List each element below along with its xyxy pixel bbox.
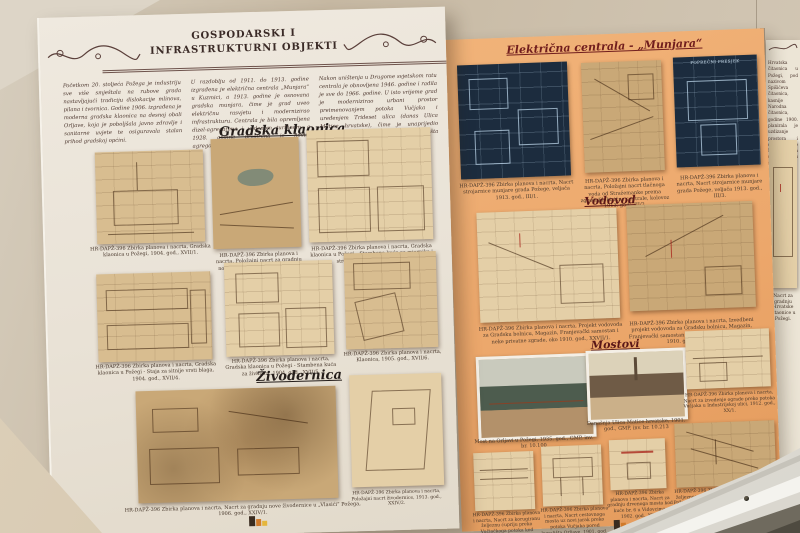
drawing-bridge-1 xyxy=(473,451,535,511)
map-vodovod-2 xyxy=(626,201,756,312)
caption: HR-DAPŽ-396 Zbirka planova i nacrta, Nac… xyxy=(683,390,776,416)
sketch-lines xyxy=(286,307,328,348)
sketch-lines xyxy=(354,292,405,341)
sketch-lines xyxy=(190,289,207,344)
sketch-lines xyxy=(220,224,294,228)
logo-block xyxy=(256,519,261,526)
caption: HR-DAPŽ-396 Zbirka planova i nacrta, Gra… xyxy=(85,243,215,259)
sketch-lines xyxy=(480,469,528,472)
sketch-lines xyxy=(691,448,759,468)
sketch-lines xyxy=(229,411,308,424)
sketch-lines xyxy=(699,362,727,381)
sketch-lines xyxy=(560,478,562,496)
sketch-lines xyxy=(238,312,280,347)
drawing-klaonica-plans xyxy=(306,127,433,242)
map-vodovod-1 xyxy=(476,208,620,323)
drawing-klaonica-elevation xyxy=(95,149,206,244)
sketch-chimney xyxy=(136,162,138,190)
map-tlacni-vod xyxy=(581,60,665,173)
caption: Današnja Ulica Matice hrvatske, 1901. go… xyxy=(586,417,686,433)
blueprint-poprecni-presjek: POPREČNI PRESJEK xyxy=(673,55,761,168)
sketch-lines xyxy=(237,447,300,475)
caption: HR-DAPŽ-396 Zbirka planova i nacrta, Pol… xyxy=(346,489,446,509)
flourish-ornament-right xyxy=(341,29,438,58)
sketch-lines xyxy=(560,263,605,304)
sketch-lines xyxy=(773,167,793,258)
sketch-lines xyxy=(377,185,425,231)
sketch-lines xyxy=(715,439,717,465)
sketch-lines xyxy=(108,232,194,235)
sketch-lines xyxy=(552,457,593,478)
screw-head xyxy=(744,496,749,501)
drawing-klaonica-1905 xyxy=(344,251,439,350)
photo-road xyxy=(481,407,594,438)
right-exhibition-panel: Električna centrala - „Munjara“ POPREČNI… xyxy=(444,28,782,531)
caption: HR-DAPŽ-396 Zbirka planova i nacrta, Nac… xyxy=(123,501,363,520)
sketch-lines xyxy=(113,189,179,226)
sketch-lines xyxy=(318,187,371,233)
blueprint-strojarnica-1 xyxy=(457,62,571,180)
sketch-lines xyxy=(392,407,415,425)
drawing-bridge-2 xyxy=(541,445,603,507)
sketch-lines xyxy=(475,130,511,165)
sketch-lines xyxy=(235,273,279,304)
sketch-lines xyxy=(687,79,748,121)
sketch-lines xyxy=(468,77,509,110)
drawing-zivodernica-site xyxy=(349,373,444,488)
exhibition-photo: Hrvatska čitaonica u Požegi, pod nazivom… xyxy=(0,0,800,533)
drawing-kuca-zivinara xyxy=(224,260,335,357)
sketch-lines xyxy=(106,288,188,312)
panel-title: GOSPODARSKI I INFRASTRUKTURNI OBJEKTI xyxy=(143,25,344,58)
sketch-red-mark xyxy=(780,184,781,192)
photo-most-na-orljavi xyxy=(476,353,597,441)
sketch-lines xyxy=(107,323,189,350)
sketch-water-blob xyxy=(238,168,274,187)
sketch-lines xyxy=(366,389,431,471)
sketch-red-mark xyxy=(519,233,521,247)
caption: HR-DAPŽ-396 Zbirka planova i nacrta, Nac… xyxy=(471,511,542,533)
drawing-staja xyxy=(96,271,212,362)
title-divider xyxy=(102,61,446,74)
sketch-lines xyxy=(700,124,737,156)
flourish-ornament-partial xyxy=(768,42,798,54)
sketch-lines xyxy=(582,478,584,496)
drawing-zivodernica-large xyxy=(135,386,338,504)
sketch-lines xyxy=(152,408,199,434)
sketch-lines xyxy=(480,477,528,480)
sketch-lines xyxy=(645,214,723,256)
sketch-lines xyxy=(316,140,369,177)
drawing-polozajni-nacrt xyxy=(210,137,301,249)
sketch-lines xyxy=(220,202,293,215)
sketch-lines xyxy=(590,116,653,140)
photo-ulica-matice-hrvatske xyxy=(585,347,688,423)
sketch-lines xyxy=(518,107,559,145)
sketch-lines xyxy=(704,265,742,296)
logo-block xyxy=(249,516,255,526)
sketch-lines xyxy=(489,242,554,269)
caption: HR-DAPŽ-396 Zbirka planova i nacrta, Nac… xyxy=(539,506,610,533)
left-exhibition-panel: GOSPODARSKI I INFRASTRUKTURNI OBJEKTI Po… xyxy=(37,7,459,533)
sketch-lines xyxy=(626,462,651,480)
flourish-ornament-left xyxy=(46,41,143,70)
sketch-red-mark xyxy=(622,451,653,454)
blueprint-label: POPREČNI PRESJEK xyxy=(673,58,757,66)
sketch-lines xyxy=(686,432,754,452)
caption: HR-DAPŽ-396 Zbirka planova i nacrta, Kla… xyxy=(342,349,442,364)
sketch-lines xyxy=(353,261,411,290)
museum-logo-icon xyxy=(249,516,267,526)
drawing-citaonica-plan xyxy=(769,140,797,288)
sketch-lines xyxy=(628,74,655,101)
drawing-ograda-vucjak xyxy=(685,328,771,389)
logo-block xyxy=(262,521,267,526)
sketch-lines xyxy=(149,447,220,485)
sketch-lines xyxy=(693,355,764,359)
drawing-bridge-3 xyxy=(609,438,667,490)
